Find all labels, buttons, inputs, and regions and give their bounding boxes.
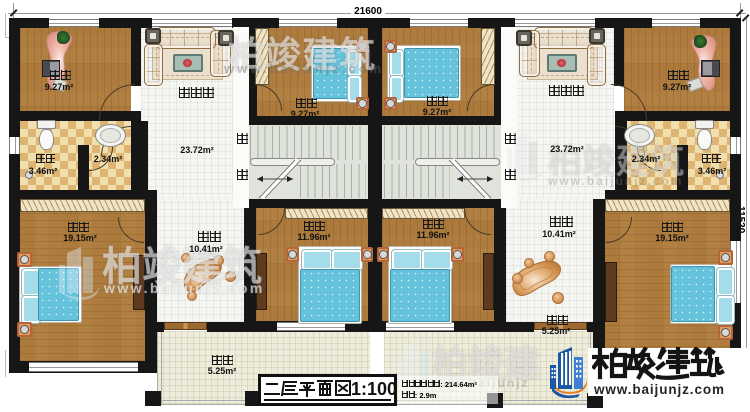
svg-text:1:100: 1:100 [351, 379, 394, 399]
